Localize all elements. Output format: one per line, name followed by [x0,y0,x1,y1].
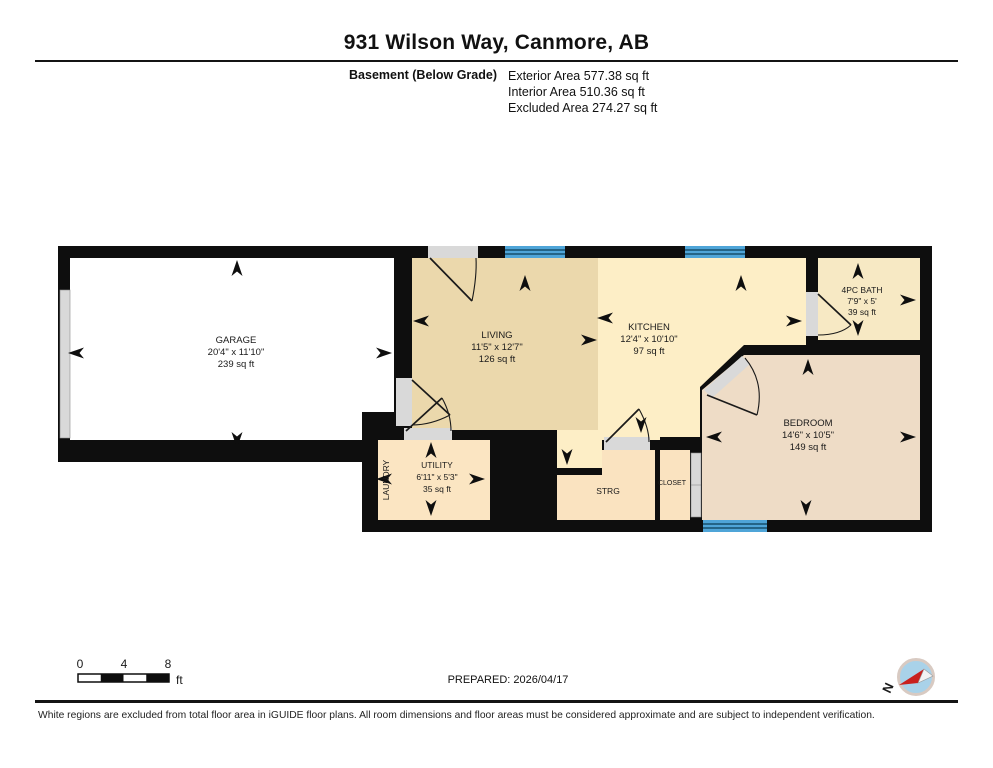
door-opening [806,292,818,336]
room-dims-living: 11'5" x 12'7" [471,342,522,353]
door-opening [404,428,452,440]
scale-tick-0: 0 [77,657,84,671]
room-label-bedroom: BEDROOM [783,418,832,429]
room-label-utility: UTILITY [421,460,453,470]
room-area-utility: 35 sq ft [423,484,452,494]
room-area-bath: 39 sq ft [848,307,877,317]
room-area-kitchen: 97 sq ft [633,346,665,357]
scale-bar: 0 4 8 ft [77,657,184,687]
floorplan-drawing: GARAGE 20'4" x 11'10" 239 sq ft LIVING 1… [0,0,993,768]
room-label-kitchen: KITCHEN [628,322,670,333]
window-kitchen [685,246,745,258]
room-label-garage: GARAGE [216,335,257,346]
room-label-closet: CLOSET [658,480,687,487]
compass-icon: N [879,660,933,696]
room-label-living: LIVING [481,330,512,341]
floorplan-page: 931 Wilson Way, Canmore, AB Basement (Be… [0,0,993,768]
window-living [505,246,565,258]
room-area-bedroom: 149 sq ft [790,442,827,453]
room-dims-garage: 20'4" x 11'10" [208,347,265,358]
garage-door [60,290,70,438]
door-opening [604,437,650,450]
room-dims-utility: 6'11" x 5'3" [416,472,457,482]
scale-tick-4: 4 [121,657,128,671]
room-label-laundry: LAUNDRY [381,459,391,500]
room-area-garage: 239 sq ft [218,359,255,370]
scale-tick-8: 8 [165,657,172,671]
room-dims-bedroom: 14'6" x 10'5" [782,430,834,441]
compass-north-label: N [879,680,897,695]
scale-unit: ft [176,673,183,687]
door-opening [428,246,478,258]
prepared-date: PREPARED: 2026/04/17 [358,674,658,686]
room-label-bath: 4PC BATH [842,285,883,295]
room-dims-kitchen: 12'4" x 10'10" [620,334,677,345]
room-area-living: 126 sq ft [479,354,516,365]
door-opening [396,378,412,426]
room-dims-bath: 7'9" x 5' [847,296,877,306]
footer-divider [35,700,958,703]
window-bedroom [703,520,767,532]
room-label-storage: STRG [596,486,620,496]
disclaimer-text: White regions are excluded from total fl… [38,710,968,721]
